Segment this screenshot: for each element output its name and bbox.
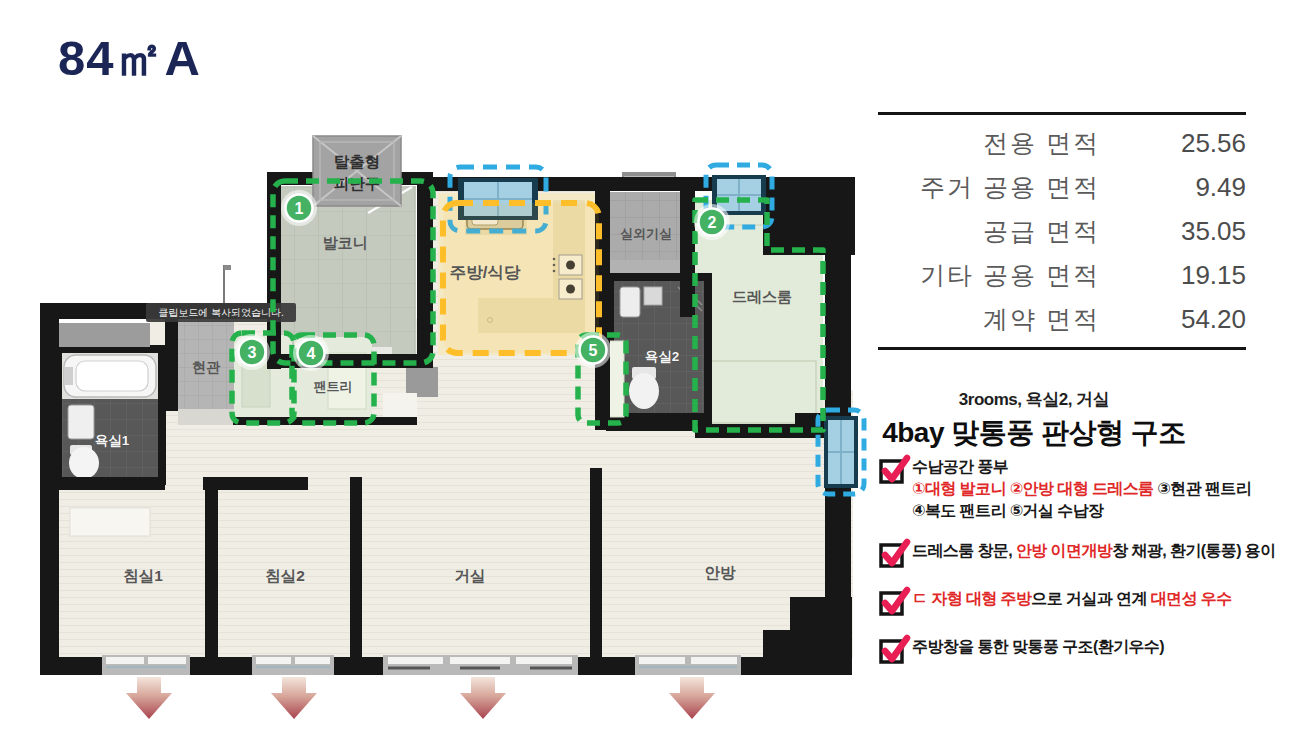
svg-text:4: 4 [307,345,316,362]
clipboard-tooltip-text: 클립보드에 복사되었습니다. [158,307,284,318]
badge-2: 2 [694,204,730,240]
area-row-label: 공급 면적 [878,215,1138,248]
feature-item: ㄷ 자형 대형 주방으로 거실과 연계 대면성 우수 [876,587,1296,618]
arrow-down-icon [271,677,317,719]
bath1-label: 욕실1 [95,433,130,448]
room-bath1 [54,345,166,485]
feature-text: 주방창을 통한 맞통풍 구조(환기우수) [912,635,1164,658]
area-row-label: 계약 면적 [878,303,1138,336]
badge-3: 3 [234,334,270,370]
arrow-down-icon [126,677,172,719]
area-row-value: 35.05 [1138,216,1246,247]
checkbox-icon [876,452,912,486]
feature-text: ㄷ 자형 대형 주방으로 거실과 연계 대면성 우수 [912,587,1232,610]
washer-icon [644,287,662,305]
badge-5: 5 [575,332,611,368]
floorplan-drawing: 탈출형 피난구 클립보드에 복사되었습니다. [30,115,875,740]
table-row: 공급 면적35.05 [878,209,1246,253]
checkbox-icon [876,632,912,666]
table-row: 전용 면적25.56 [878,121,1246,165]
washbasin-icon [620,287,640,317]
badge-4: 4 [293,335,329,371]
svg-text:3: 3 [248,344,257,361]
checkbox-icon [876,536,912,570]
svg-text:5: 5 [589,342,598,359]
feature-text: 수납공간 풍부 ①대형 발코니 ②안방 대형 드레스룸 ③현관 팬트리 ④복도 … [912,455,1251,522]
bedroom2-label: 침실2 [265,567,305,584]
toilet-icon [629,367,659,409]
kitchen-label: 주방/식당 [450,263,521,281]
area-row-label: 기타 공용 면적 [878,259,1138,292]
washbasin-icon [68,405,94,439]
area-row-label: 전용 면적 [878,127,1138,160]
escape-hatch-box: 탈출형 피난구 [313,136,401,206]
feature-item: 드레스룸 창문, 안방 이면개방창 채광, 환기(통풍) 용이 [876,539,1296,570]
svg-text:1: 1 [295,200,304,217]
table-row: 계약 면적54.20 [878,297,1246,341]
checkbox-icon [876,584,912,618]
airflow-arrows [126,677,715,719]
bath2-label: 욕실2 [645,349,680,364]
arrow-down-icon [669,677,715,719]
table-row: 주거 공용 면적9.49 [878,165,1246,209]
table-row: 기타 공용 면적19.15 [878,253,1246,297]
feature-item: 주방창을 통한 맞통풍 구조(환기우수) [876,635,1296,666]
pole-marker [224,265,231,304]
summary-block: 3rooms, 욕실2, 거실 4bay 맞통풍 판상형 구조 [850,388,1218,452]
badge-1: 1 [281,190,317,226]
feature-checklist: 수납공간 풍부 ①대형 발코니 ②안방 대형 드레스룸 ③현관 팬트리 ④복도 … [876,455,1296,666]
dressroom-label: 드레스룸 [732,288,792,305]
floorplan-page: 84㎡A [0,0,1300,740]
escape-hatch-label-1: 탈출형 [334,153,381,170]
page-title: 84㎡A [58,26,201,92]
master-label: 안방 [705,564,737,581]
area-row-value: 54.20 [1138,304,1246,335]
area-table: 전용 면적25.56 주거 공용 면적9.49 공급 면적35.05 기타 공용… [878,112,1246,350]
bathtub-icon [64,355,156,397]
summary-headline: 4bay 맞통풍 판상형 구조 [850,414,1218,452]
living-label: 거실 [455,567,486,584]
area-row-value: 25.56 [1138,128,1246,159]
balcony-label: 발코니 [323,234,368,251]
area-row-label: 주거 공용 면적 [878,171,1138,204]
area-row-value: 19.15 [1138,260,1246,291]
entrance-label: 현관 [192,359,221,375]
area-row-value: 9.49 [1138,172,1246,203]
bedroom1-label: 침실1 [123,567,163,584]
summary-subtitle: 3rooms, 욕실2, 거실 [850,388,1218,411]
ac-room-label: 실외기실 [620,226,672,241]
arrow-down-icon [460,677,506,719]
svg-text:2: 2 [708,214,717,231]
pantry-label: 팬트리 [314,379,353,394]
feature-text: 드레스룸 창문, 안방 이면개방창 채광, 환기(통풍) 용이 [912,539,1276,562]
feature-item: 수납공간 풍부 ①대형 발코니 ②안방 대형 드레스룸 ③현관 팬트리 ④복도 … [876,455,1296,522]
